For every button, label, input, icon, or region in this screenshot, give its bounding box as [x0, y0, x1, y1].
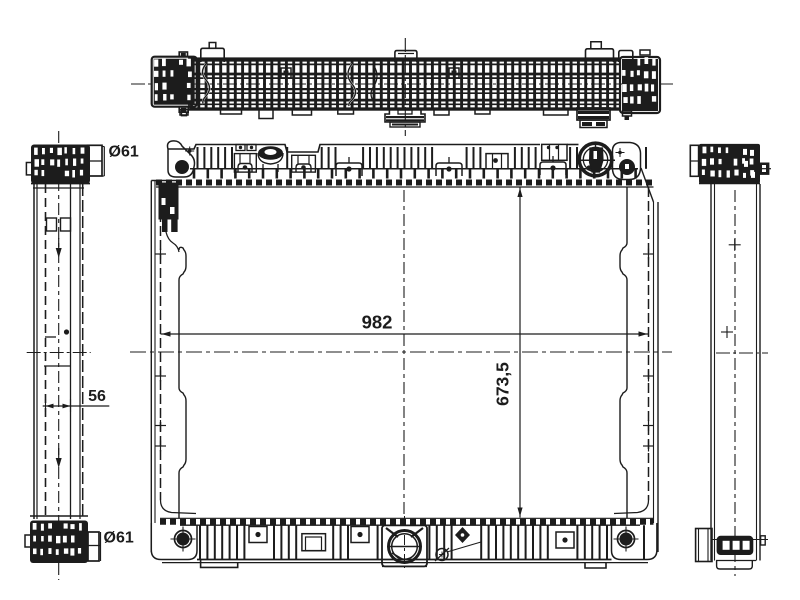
svg-text:Ø61: Ø61 — [104, 530, 134, 547]
svg-text:673,5: 673,5 — [493, 362, 513, 406]
svg-text:Ø61: Ø61 — [109, 144, 139, 161]
svg-text:56: 56 — [88, 388, 106, 405]
svg-text:982: 982 — [362, 312, 393, 333]
